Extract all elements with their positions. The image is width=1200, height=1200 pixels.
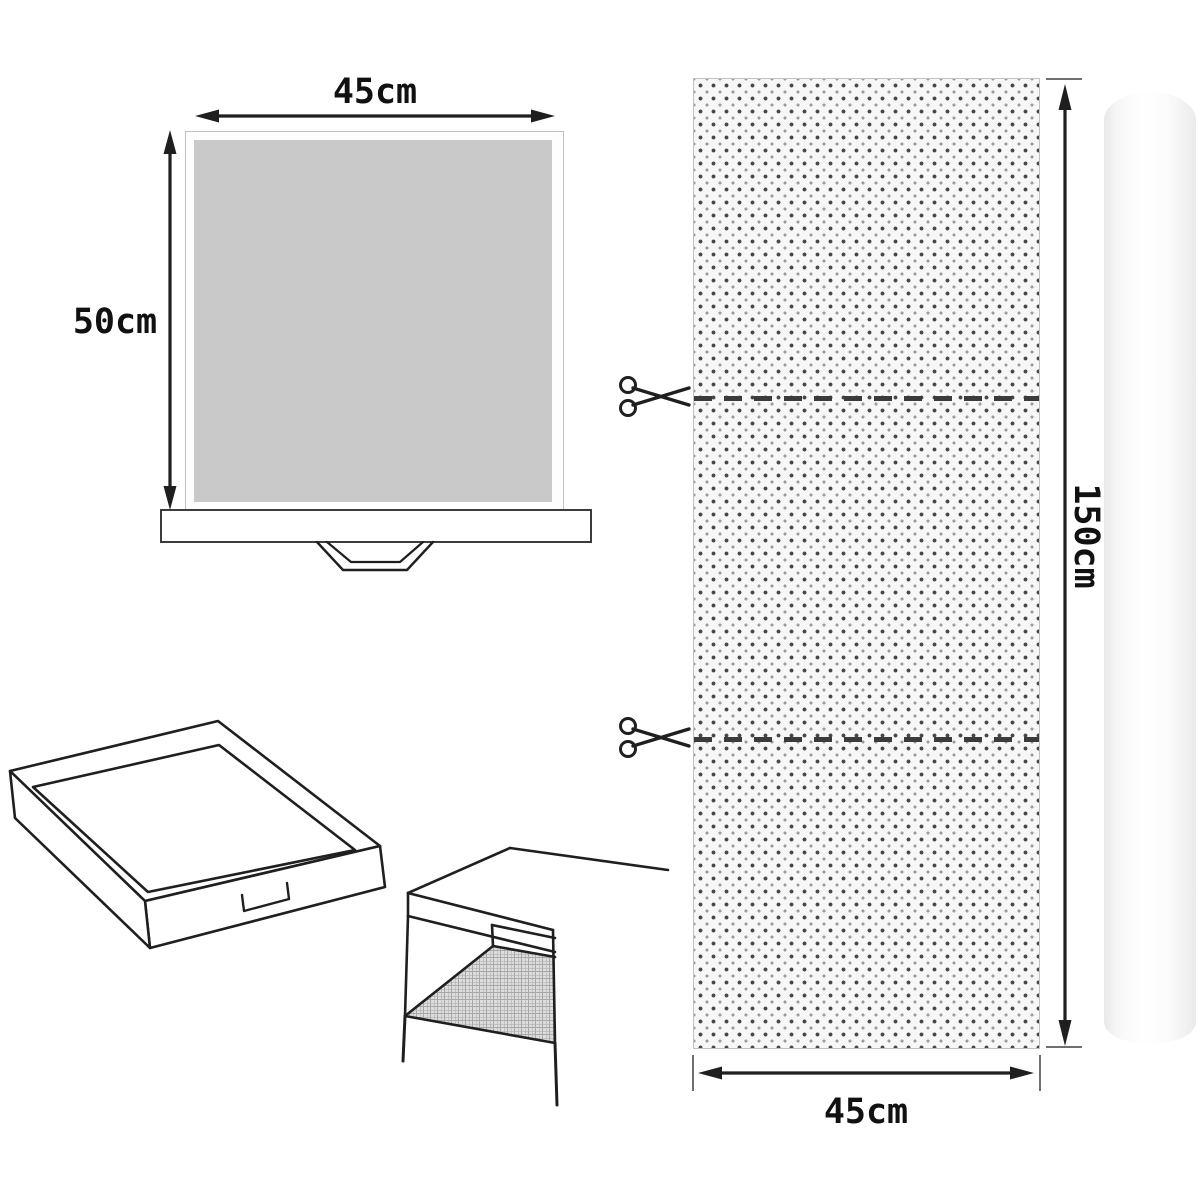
width-arrow [195,103,555,129]
cut-line-1 [694,396,1039,401]
length-tick-bottom [1046,1046,1082,1048]
roll-width-arrow [698,1060,1034,1086]
product-diagram: 45cm 50cm [0,0,1200,1200]
width-tick-right [1039,1055,1041,1091]
table-illustration [385,835,675,1135]
shelf-board [160,509,592,543]
height-arrow [157,130,183,510]
roll-width-label: 45cm [786,1092,946,1132]
shelf-liner-front-view: 45cm 50cm [0,0,640,620]
liner-roll [1104,92,1196,1044]
drawer-handle-front [305,540,445,576]
scissors-icon [616,715,692,761]
length-tick-top [1046,78,1082,80]
cut-line-2 [694,737,1039,742]
width-tick-left [692,1055,694,1091]
liner-sheet [185,131,564,511]
drawer-illustration [5,705,400,1000]
liner-sheet-fill [194,140,552,502]
roll-length-label: 150cm [1066,456,1106,616]
liner-roll-unrolled [693,78,1040,1049]
scissors-icon [616,374,692,420]
